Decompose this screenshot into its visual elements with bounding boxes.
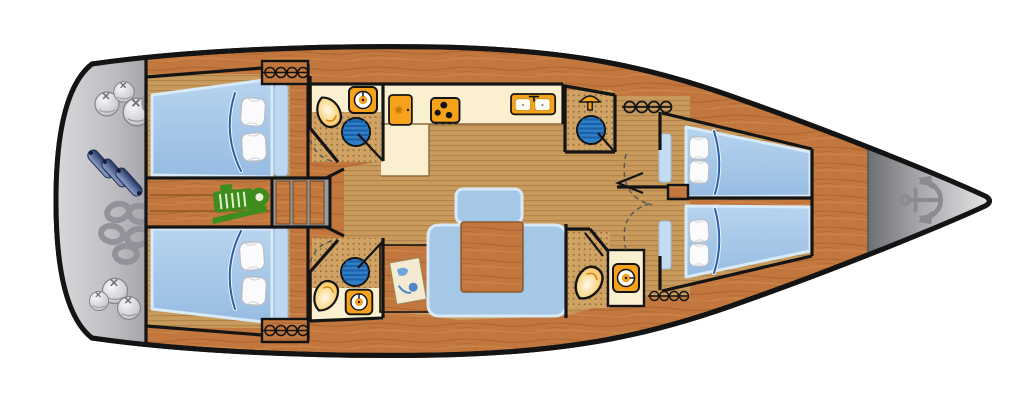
pillow <box>241 132 266 161</box>
engine-room <box>148 180 272 227</box>
pillow <box>689 244 708 266</box>
washing-machine-icon <box>349 87 377 113</box>
pillow <box>689 160 709 183</box>
double-berth <box>152 79 272 177</box>
stove-icon <box>431 98 460 124</box>
washing-machine-icon <box>613 264 639 292</box>
pillow <box>689 219 709 242</box>
pillow <box>239 241 265 271</box>
bulkhead-jog <box>668 185 688 199</box>
washbasin-icon <box>577 116 605 144</box>
pillow <box>240 97 266 127</box>
washing-machine-icon <box>346 290 373 315</box>
head-aft-port <box>308 84 383 162</box>
pillow <box>689 137 708 159</box>
galley-counter-return <box>381 124 429 176</box>
companionway-steps <box>272 178 330 227</box>
shower-room-forward <box>567 90 613 150</box>
pillow <box>241 276 266 305</box>
bench-seat <box>456 189 522 223</box>
fridge-icon <box>389 95 412 125</box>
head-aft-starboard <box>308 238 383 320</box>
double-sink-icon <box>511 94 555 114</box>
bow <box>868 149 987 254</box>
deck-plan-drawing <box>0 0 1024 403</box>
yacht-deck-plan <box>0 0 1024 403</box>
dining-table <box>461 222 523 292</box>
